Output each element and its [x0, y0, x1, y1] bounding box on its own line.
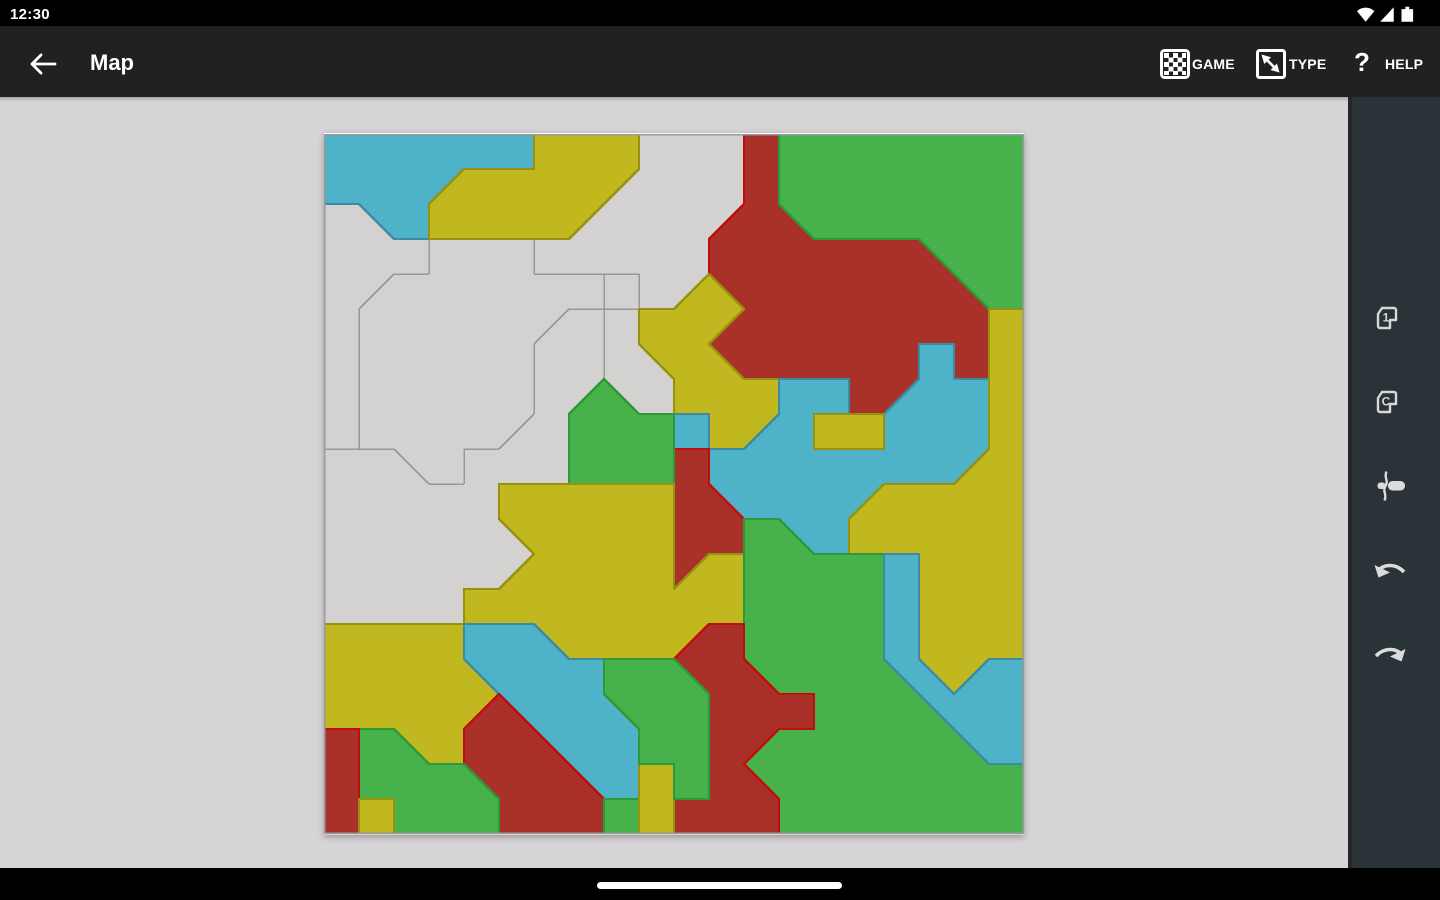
svg-text:1: 1	[1383, 311, 1390, 325]
svg-text:C: C	[1382, 395, 1391, 409]
